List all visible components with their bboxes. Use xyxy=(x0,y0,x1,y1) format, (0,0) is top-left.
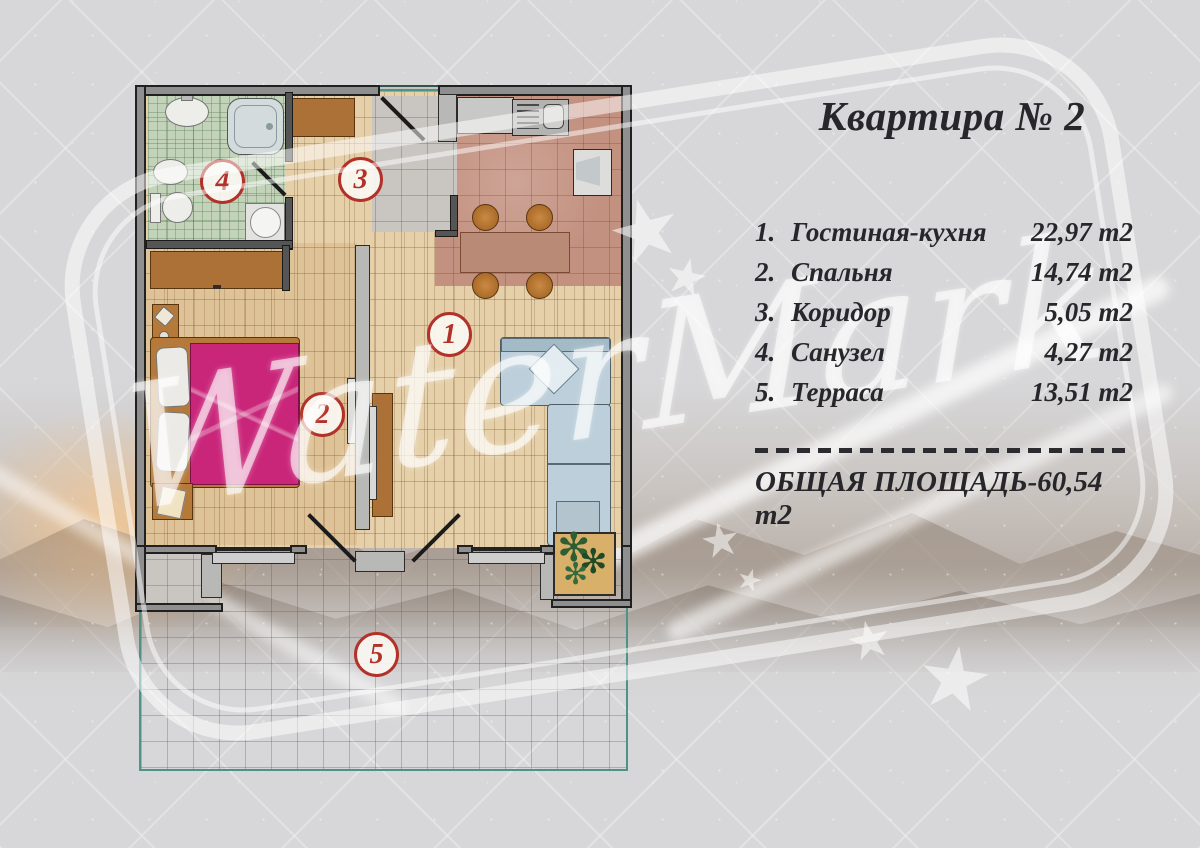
room-number: 4 xyxy=(216,166,230,197)
room-number: 5 xyxy=(370,639,384,670)
kitchen-appliance-unit xyxy=(512,99,569,136)
lamp-icon xyxy=(154,306,175,327)
legend-room-area: 5,05 m2 xyxy=(1044,297,1133,328)
bed-pillow xyxy=(155,411,190,473)
legend-number: 2. xyxy=(755,257,791,288)
legend-room-area: 13,51 m2 xyxy=(1031,377,1133,408)
dining-table xyxy=(460,232,570,273)
toilet-icon xyxy=(162,192,193,223)
terrace-door-pier xyxy=(355,551,405,572)
wall-right-extension xyxy=(621,545,632,607)
legend-room-name: Санузел xyxy=(791,337,1044,368)
washing-machine-icon xyxy=(245,203,285,242)
wall-left xyxy=(135,85,146,553)
corner-wall xyxy=(551,599,632,608)
floor-plan-page: ✻ ✻ ✻ xyxy=(0,0,1200,848)
legend-number: 5. xyxy=(755,377,791,408)
legend-room-name: Спальня xyxy=(791,257,1031,288)
bed-cover xyxy=(190,343,299,485)
partition-wall xyxy=(355,245,370,530)
room-number: 1 xyxy=(443,319,457,350)
legend-row: 1. Гостиная-кухня 22,97 m2 xyxy=(755,217,1133,248)
wall-top-left xyxy=(135,85,380,96)
notch-wall xyxy=(135,603,223,612)
legend-row: 3. Коридор 5,05 m2 xyxy=(755,297,1133,328)
bed-pillow xyxy=(155,346,190,408)
stool xyxy=(472,204,499,231)
room-badge-bathroom: 4 xyxy=(200,159,245,204)
bathroom-wall xyxy=(285,92,293,162)
kitchen-sink-icon xyxy=(543,104,564,129)
legend-row: 2. Спальня 14,74 m2 xyxy=(755,257,1133,288)
tv-screen xyxy=(576,156,600,186)
window-line xyxy=(217,547,290,551)
room-legend: 1. Гостиная-кухня 22,97 m2 2. Спальня 14… xyxy=(755,217,1133,417)
wall-right xyxy=(621,85,632,547)
stool xyxy=(526,272,553,299)
bidet-icon xyxy=(153,159,188,185)
page-title: Квартира № 2 xyxy=(740,92,1164,140)
legend-room-name: Терраса xyxy=(791,377,1031,408)
sink-icon xyxy=(165,97,209,127)
room-badge-bedroom: 2 xyxy=(300,392,345,437)
paper-icon xyxy=(156,486,186,520)
apartment-floor-plan: ✻ ✻ ✻ xyxy=(135,85,632,775)
wall-bottom xyxy=(135,545,217,554)
room-number: 2 xyxy=(316,399,330,430)
room-badge-corridor: 3 xyxy=(338,157,383,202)
legend-row: 4. Санузел 4,27 m2 xyxy=(755,337,1133,368)
entry-pier xyxy=(438,94,457,142)
legend-row: 5. Терраса 13,51 m2 xyxy=(755,377,1133,408)
legend-number: 4. xyxy=(755,337,791,368)
wardrobe-handle xyxy=(213,285,221,289)
total-area-label: ОБЩАЯ ПЛОЩАДЬ-60,54 m2 xyxy=(755,466,1135,532)
toilet-tank-icon xyxy=(150,193,161,223)
legend-room-area: 4,27 m2 xyxy=(1044,337,1133,368)
entry-wall xyxy=(435,230,458,237)
wall-left-extension xyxy=(135,545,146,611)
legend-room-area: 14,74 m2 xyxy=(1031,257,1133,288)
bedroom-wall-stub xyxy=(282,245,290,291)
wall-top-right xyxy=(438,85,632,96)
plant-icon: ✻ xyxy=(563,560,588,590)
legend-number: 3. xyxy=(755,297,791,328)
shower-icon xyxy=(227,98,284,155)
window-line xyxy=(473,547,540,551)
room-number: 3 xyxy=(354,164,368,195)
legend-room-name: Гостиная-кухня xyxy=(791,217,1031,248)
legend-room-name: Коридор xyxy=(791,297,1044,328)
separator-dashed-line xyxy=(755,448,1132,453)
bathroom-wall-bottom xyxy=(146,240,293,249)
corridor-wardrobe xyxy=(291,98,355,137)
window-sill xyxy=(468,552,545,564)
tv-icon xyxy=(573,149,612,196)
stool xyxy=(472,272,499,299)
stool xyxy=(526,204,553,231)
window-sill xyxy=(212,552,295,564)
stove-grill-icon xyxy=(517,104,539,129)
room-badge-living: 1 xyxy=(427,312,472,357)
bedroom-wardrobe xyxy=(150,251,283,289)
nightstand xyxy=(152,483,193,520)
legend-room-area: 22,97 m2 xyxy=(1031,217,1133,248)
kitchen-counter xyxy=(457,97,514,134)
sofa-seam xyxy=(548,463,610,465)
room-badge-terrace: 5 xyxy=(354,632,399,677)
plant-box: ✻ ✻ ✻ xyxy=(553,532,616,596)
legend-number: 1. xyxy=(755,217,791,248)
